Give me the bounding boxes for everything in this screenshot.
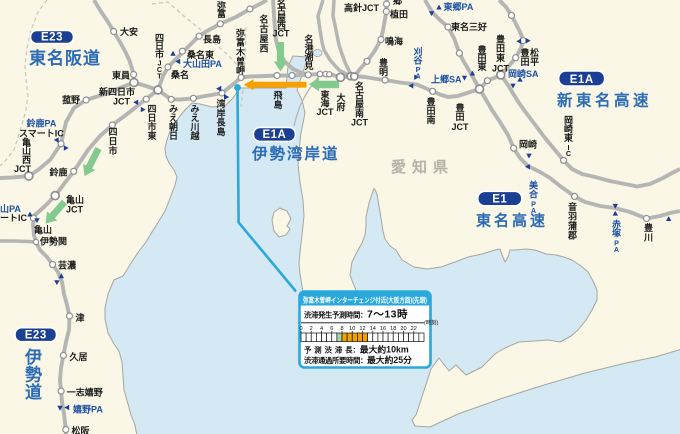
svg-text:弥富木曽岬インターチェンジ付近(大阪方面)(先頭): 弥富木曽岬インターチェンジ付近(大阪方面)(先頭)	[303, 296, 427, 305]
svg-text:弥富木曽岬: 弥富木曽岬	[235, 27, 246, 75]
svg-text:E1A: E1A	[570, 74, 594, 86]
svg-text:JCT: JCT	[14, 164, 32, 174]
svg-text:郷: 郷	[393, 0, 402, 6]
svg-text:東員: 東員	[112, 70, 130, 81]
svg-text:渋滞通過所要時間：最大約25分: 渋滞通過所要時間：最大約25分	[304, 354, 412, 365]
svg-text:大安: 大安	[120, 26, 138, 37]
svg-text:JCT: JCT	[452, 122, 470, 132]
svg-text:豊明: 豊明	[379, 57, 388, 77]
svg-text:亀山: 亀山	[34, 224, 52, 235]
svg-text:新四日市: 新四日市	[99, 86, 135, 97]
svg-text:菰野: 菰野	[62, 94, 80, 105]
svg-text:豊田: 豊田	[455, 102, 464, 122]
svg-text:音羽蒲郡: 音羽蒲郡	[567, 201, 577, 241]
svg-text:名古屋西: 名古屋西	[277, 0, 286, 31]
svg-text:豊田: 豊田	[520, 47, 529, 67]
svg-text:愛知県: 愛知県	[391, 158, 454, 176]
svg-text:豊田東: 豊田東	[496, 33, 505, 63]
svg-text:大府: 大府	[336, 92, 345, 112]
svg-text:芸濃: 芸濃	[58, 259, 77, 270]
svg-text:長島: 長島	[203, 34, 221, 45]
svg-text:一志嬉野: 一志嬉野	[67, 386, 103, 397]
svg-text:E1A: E1A	[262, 129, 286, 141]
svg-text:上郷SA: 上郷SA	[431, 74, 462, 85]
svg-text:岡崎: 岡崎	[519, 139, 537, 150]
svg-text:豊田東: 豊田東	[477, 44, 486, 72]
svg-text:東名阪道: 東名阪道	[29, 48, 101, 68]
svg-text:湾岸長島: 湾岸長島	[216, 98, 226, 137]
svg-text:みえ川越: みえ川越	[189, 104, 200, 141]
svg-text:名古屋西: 名古屋西	[259, 14, 268, 54]
svg-text:久居: 久居	[70, 351, 88, 362]
svg-text:亀山西: 亀山西	[22, 136, 31, 164]
svg-text:東郷PA: 東郷PA	[444, 1, 474, 12]
svg-text:豊田南: 豊田南	[426, 96, 435, 125]
svg-text:東名高速: 東名高速	[476, 212, 548, 230]
svg-text:予測渋滞長：最大約10km: 予測渋滞長：最大約10km	[304, 344, 409, 355]
svg-text:鈴鹿: 鈴鹿	[50, 167, 68, 178]
svg-text:ートIC: ートIC	[0, 213, 28, 223]
svg-text:高針JCT: 高針JCT	[344, 2, 380, 13]
svg-text:津: 津	[76, 312, 85, 323]
svg-text:松平: 松平	[530, 47, 539, 67]
svg-text:名港潮見: 名港潮見	[303, 33, 314, 71]
svg-text:岡崎SA: 岡崎SA	[508, 68, 539, 79]
svg-text:亀山: 亀山	[66, 194, 84, 205]
svg-text:豊川: 豊川	[643, 222, 653, 243]
svg-text:新東名高速: 新東名高速	[557, 91, 652, 110]
svg-text:伊勢道: 伊勢道	[24, 347, 42, 402]
svg-text:鳴海: 鳴海	[385, 36, 403, 47]
svg-text:植田: 植田	[389, 9, 408, 20]
svg-text:みえ朝日: みえ朝日	[169, 104, 178, 141]
svg-text:四日市東: 四日市東	[147, 104, 156, 141]
svg-text:(時刻): (時刻)	[424, 319, 439, 327]
svg-text:東名三好: 東名三好	[451, 21, 487, 32]
svg-text:弥富: 弥富	[217, 0, 226, 19]
svg-text:桑名: 桑名	[170, 69, 189, 80]
svg-text:伊勢関: 伊勢関	[39, 235, 67, 246]
svg-text:東海: 東海	[320, 89, 329, 109]
svg-text:名古屋南: 名古屋南	[355, 80, 364, 118]
svg-text:鈴鹿PA: 鈴鹿PA	[27, 118, 57, 129]
svg-text:松阪: 松阪	[72, 425, 91, 434]
svg-text:JCT: JCT	[317, 107, 335, 117]
svg-text:E23: E23	[25, 330, 47, 342]
svg-text:伊勢湾岸道: 伊勢湾岸道	[251, 144, 340, 163]
svg-text:E23: E23	[41, 31, 63, 43]
svg-text:大山田PA: 大山田PA	[183, 58, 222, 69]
svg-text:JCT: JCT	[113, 97, 131, 107]
svg-text:JCT: JCT	[492, 63, 510, 73]
svg-text:JCT: JCT	[351, 118, 369, 128]
svg-text:JCT: JCT	[66, 205, 84, 215]
svg-text:飛島: 飛島	[272, 90, 282, 109]
svg-text:E1: E1	[492, 194, 507, 206]
svg-text:四日市: 四日市	[108, 127, 117, 156]
svg-text:嬉野PA: 嬉野PA	[72, 404, 103, 415]
